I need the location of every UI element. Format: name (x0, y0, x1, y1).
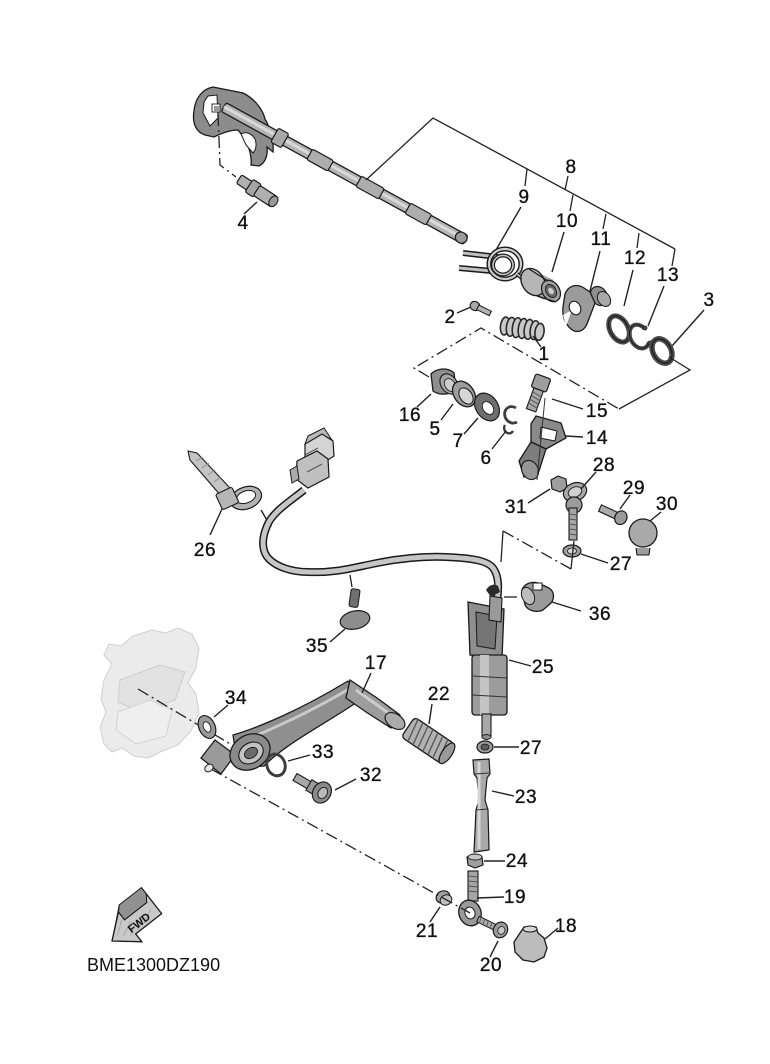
svg-text:BME1300DZ190: BME1300DZ190 (87, 955, 220, 975)
svg-text:34: 34 (225, 688, 247, 709)
svg-text:24: 24 (506, 851, 528, 872)
svg-text:18: 18 (555, 916, 577, 937)
svg-text:1: 1 (538, 344, 549, 365)
svg-text:16: 16 (399, 405, 421, 426)
svg-text:9: 9 (518, 187, 529, 208)
svg-text:19: 19 (504, 887, 526, 908)
svg-text:7: 7 (452, 431, 463, 452)
svg-text:8: 8 (565, 157, 576, 178)
svg-text:5: 5 (429, 419, 440, 440)
svg-text:33: 33 (312, 742, 334, 763)
svg-text:27: 27 (520, 738, 542, 759)
svg-text:31: 31 (505, 497, 527, 518)
svg-text:27: 27 (610, 554, 632, 575)
svg-text:32: 32 (360, 765, 382, 786)
svg-text:10: 10 (556, 211, 578, 232)
svg-text:36: 36 (589, 604, 611, 625)
svg-text:30: 30 (656, 494, 678, 515)
svg-text:3: 3 (703, 290, 714, 311)
svg-text:12: 12 (624, 248, 646, 269)
svg-text:20: 20 (480, 955, 502, 976)
svg-text:29: 29 (623, 478, 645, 499)
svg-text:21: 21 (416, 921, 438, 942)
svg-text:25: 25 (532, 657, 554, 678)
svg-text:13: 13 (657, 265, 679, 286)
svg-text:17: 17 (365, 653, 387, 674)
svg-text:4: 4 (237, 213, 248, 234)
svg-text:22: 22 (428, 684, 450, 705)
svg-text:6: 6 (480, 448, 491, 469)
svg-text:15: 15 (586, 401, 608, 422)
svg-text:35: 35 (306, 636, 328, 657)
svg-text:2: 2 (444, 307, 455, 328)
svg-text:26: 26 (194, 540, 216, 561)
svg-text:11: 11 (591, 229, 612, 250)
svg-text:23: 23 (515, 787, 537, 808)
svg-text:14: 14 (586, 428, 608, 449)
svg-text:28: 28 (593, 455, 615, 476)
